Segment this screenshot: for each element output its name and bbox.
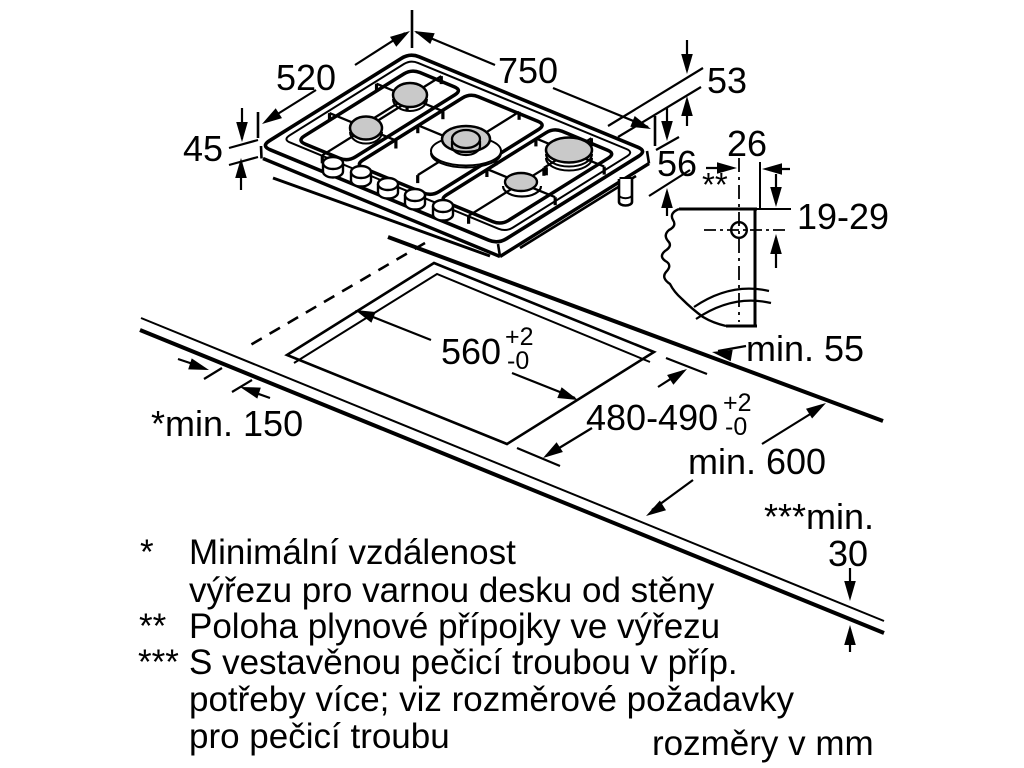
- svg-text:min. 55: min. 55: [746, 328, 864, 369]
- svg-text:pro pečicí troubu: pro pečicí troubu: [189, 717, 450, 756]
- svg-text:Minimální vzdálenost: Minimální vzdálenost: [189, 533, 516, 572]
- svg-text:S vestavěnou pečicí troubou v: S vestavěnou pečicí troubou v příp.: [189, 643, 738, 682]
- svg-text:Poloha plynové přípojky ve výř: Poloha plynové přípojky ve výřezu: [189, 607, 720, 646]
- svg-text:*: *: [140, 533, 154, 572]
- svg-text:***: ***: [138, 643, 179, 682]
- svg-text:**: **: [139, 607, 167, 646]
- svg-text:***min.: ***min.: [764, 496, 874, 537]
- svg-text:rozměry v mm: rozměry v mm: [652, 724, 874, 763]
- svg-text:*min. 150: *min. 150: [151, 403, 303, 444]
- svg-text:-0: -0: [725, 413, 747, 441]
- svg-text:30: 30: [828, 533, 868, 574]
- svg-text:560: 560: [441, 331, 501, 372]
- svg-text:výřezu pro varnou desku od stě: výřezu pro varnou desku od stěny: [189, 571, 715, 610]
- svg-text:19-29: 19-29: [797, 196, 889, 237]
- svg-text:520: 520: [276, 57, 336, 98]
- svg-text:-0: -0: [507, 347, 529, 375]
- svg-text:480-490: 480-490: [586, 397, 718, 438]
- svg-text:26: 26: [727, 123, 767, 164]
- svg-text:45: 45: [183, 128, 223, 169]
- svg-text:750: 750: [498, 50, 558, 91]
- svg-text:potřeby více; viz rozměrové po: potřeby více; viz rozměrové požadavky: [189, 680, 794, 719]
- svg-text:min. 600: min. 600: [688, 441, 826, 482]
- svg-text:53: 53: [707, 60, 747, 101]
- svg-text:56: 56: [657, 143, 697, 184]
- svg-text:**: **: [702, 166, 728, 203]
